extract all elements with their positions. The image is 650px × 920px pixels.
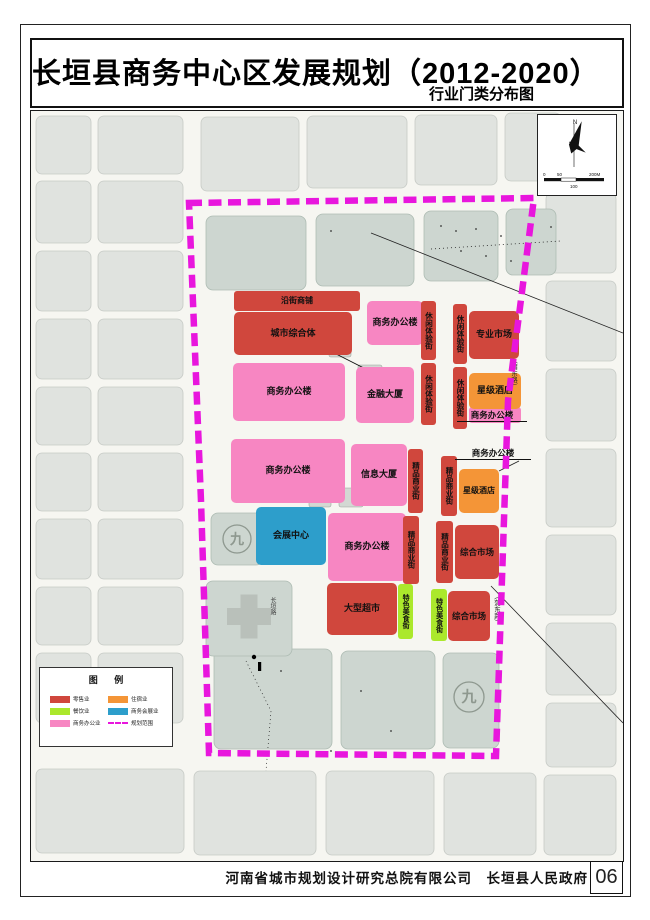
city-block xyxy=(307,116,407,188)
legend-item: 规划范围 xyxy=(108,717,166,729)
city-block xyxy=(341,651,435,749)
city-block xyxy=(98,387,183,445)
svg-text:0: 0 xyxy=(543,172,546,177)
strip-food-street: 特色美食街 xyxy=(431,589,447,641)
school-label: 九 xyxy=(460,688,476,706)
title-box: 长垣县商务中心区发展规划（2012-2020） 行业门类分布图 xyxy=(30,38,624,108)
road-label-east: （蒲东路） xyxy=(509,357,516,433)
city-block xyxy=(36,587,91,645)
city-block xyxy=(546,281,616,361)
map-canvas: 九 九 沿街商铺 城市综合体 商务办公楼 休闲体验街 休闲体验街 休闲体验街 休… xyxy=(30,110,624,862)
legend-box: 图 例 零售业 餐饮业 商务办公业 住宿业 商务会展业 规划范围 xyxy=(39,667,173,747)
legend-title: 图 例 xyxy=(40,673,172,686)
page-number-box: 06 xyxy=(590,861,623,894)
legend-label: 规划范围 xyxy=(131,719,153,727)
legend-label: 住宿业 xyxy=(131,695,148,703)
block-business-office: 商务办公楼 xyxy=(233,363,345,421)
block-urban-complex: 城市综合体 xyxy=(234,312,352,355)
block-street-shops: 沿街商铺 xyxy=(234,291,360,311)
legend-label: 餐饮业 xyxy=(73,707,90,715)
block-business-office: 商务办公楼 xyxy=(231,439,345,503)
legend-swatch xyxy=(108,696,128,703)
city-block xyxy=(36,519,91,579)
city-block xyxy=(36,453,91,511)
legend-item: 餐饮业 xyxy=(50,705,108,717)
block-star-hotel: 星级酒店 xyxy=(459,469,499,513)
block-general-market: 综合市场 xyxy=(455,525,499,579)
page-subtitle: 行业门类分布图 xyxy=(429,83,534,104)
city-block xyxy=(36,116,91,174)
legend-swatch xyxy=(108,722,128,724)
legend-item: 住宿业 xyxy=(108,693,166,705)
legend-item: 商务办公业 xyxy=(50,717,108,729)
block-hypermarket: 大型超市 xyxy=(327,583,397,635)
city-block xyxy=(546,623,616,695)
strip-leisure-street: 休闲体验街 xyxy=(421,301,436,360)
strip-food-street: 特色美食街 xyxy=(398,584,413,639)
legend-label: 商务会展业 xyxy=(131,707,159,715)
strip-boutique-street: 精品商业街 xyxy=(436,521,453,583)
city-block xyxy=(194,771,316,855)
city-block xyxy=(36,769,184,853)
svg-text:100: 100 xyxy=(570,184,578,189)
svg-text:50: 50 xyxy=(557,172,563,177)
city-block xyxy=(36,251,91,311)
scale-bar: 0 50 200M 100 xyxy=(543,172,604,189)
block-business-office: 商务办公楼 xyxy=(328,513,406,581)
block-convention-center: 会展中心 xyxy=(256,507,326,565)
city-block xyxy=(546,535,616,615)
legend-swatch xyxy=(50,720,70,727)
legend-swatch xyxy=(50,696,70,703)
road-label-changyuan: 长垣路 xyxy=(269,597,275,641)
city-block xyxy=(206,216,306,290)
block-information-tower: 信息大厦 xyxy=(351,444,407,506)
city-block xyxy=(506,209,556,275)
city-block xyxy=(546,193,616,273)
city-block xyxy=(36,387,91,445)
legend-item: 零售业 xyxy=(50,693,108,705)
north-arrow-icon: N 0 50 200M 100 xyxy=(538,115,616,195)
city-block xyxy=(415,115,497,185)
block-business-office: 商务办公楼 xyxy=(367,301,423,345)
city-block xyxy=(546,703,616,767)
city-block xyxy=(98,181,183,243)
north-box: N 0 50 200M 100 xyxy=(537,114,617,196)
city-block xyxy=(98,319,183,379)
strip-leisure-street: 休闲体验街 xyxy=(453,304,467,364)
strip-leisure-street: 休闲体验街 xyxy=(421,363,436,425)
legend-label: 零售业 xyxy=(73,695,90,703)
north-label: N xyxy=(573,120,577,126)
city-block xyxy=(214,649,332,749)
city-block xyxy=(201,117,299,191)
city-block xyxy=(424,211,498,281)
label-business-office: 商务办公楼 xyxy=(457,409,527,422)
city-block xyxy=(326,771,434,855)
strip-boutique-street: 精品商业街 xyxy=(403,516,419,584)
city-block xyxy=(98,519,183,579)
school-label: 九 xyxy=(229,531,244,547)
legend-item: 商务会展业 xyxy=(108,705,166,717)
city-block xyxy=(36,319,91,379)
strip-boutique-street: 精品商业街 xyxy=(441,456,457,516)
road-label-east: （蒲东路） xyxy=(492,593,499,663)
strip-boutique-street: 精品商业街 xyxy=(408,449,423,513)
block-general-market: 综合市场 xyxy=(448,591,490,641)
legend-label: 商务办公业 xyxy=(73,719,101,727)
city-block xyxy=(316,214,414,286)
legend-grid: 零售业 餐饮业 商务办公业 住宿业 商务会展业 规划范围 xyxy=(50,693,166,729)
block-finance-tower: 金融大厦 xyxy=(356,367,414,423)
city-block xyxy=(544,775,616,855)
block-professional-market: 专业市场 xyxy=(469,311,519,359)
footer-strip: 河南省城市规划设计研究总院有限公司 长垣县人民政府 xyxy=(30,861,588,893)
city-block xyxy=(98,587,183,645)
page-number: 06 xyxy=(595,866,617,889)
city-block xyxy=(444,773,536,855)
label-business-office: 商务办公楼 xyxy=(455,447,531,460)
city-block xyxy=(98,251,183,311)
legend-swatch xyxy=(108,708,128,715)
svg-text:200M: 200M xyxy=(589,172,601,177)
city-block xyxy=(546,369,616,441)
legend-swatch xyxy=(50,708,70,715)
city-block xyxy=(546,449,616,527)
footer-text: 河南省城市规划设计研究总院有限公司 长垣县人民政府 xyxy=(226,867,589,887)
city-block xyxy=(36,181,91,243)
city-block xyxy=(98,116,183,174)
city-block xyxy=(98,453,183,511)
